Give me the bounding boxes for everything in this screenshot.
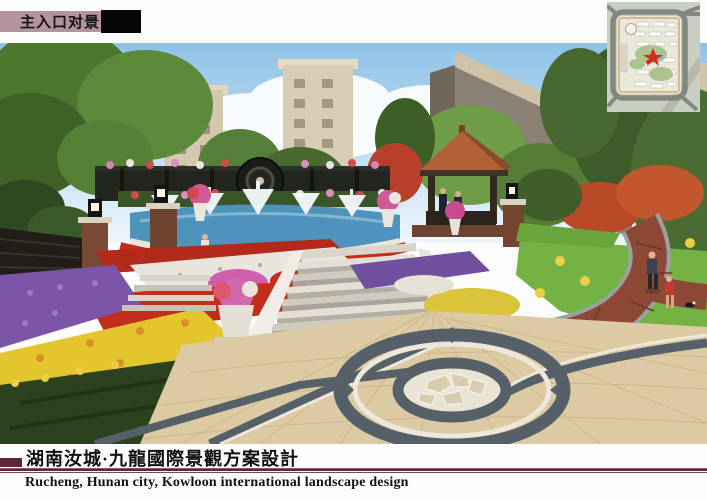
view-title-label: 主入口对景 <box>0 11 101 32</box>
footer-accent-block <box>0 458 22 467</box>
footer-rule <box>0 468 707 473</box>
plan-round-plaza <box>626 24 637 35</box>
view-title-text: 主入口对景 <box>0 11 100 32</box>
project-title-english: Rucheng, Hunan city, Kowloon internation… <box>25 475 409 491</box>
entrance-landscape-rendering <box>0 43 707 444</box>
presentation-board: 主入口对景 <box>0 0 707 500</box>
header-black-box <box>101 10 141 33</box>
site-plan-inset <box>607 2 700 112</box>
